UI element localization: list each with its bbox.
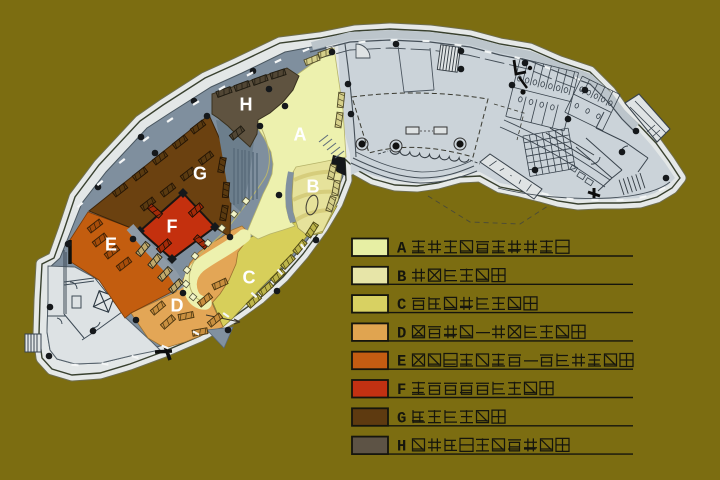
svg-text:A: A xyxy=(397,240,407,258)
svg-text:E: E xyxy=(397,353,406,371)
svg-text:F: F xyxy=(397,381,406,399)
svg-text:D: D xyxy=(171,296,184,316)
svg-text:C: C xyxy=(397,296,406,314)
svg-text:C: C xyxy=(243,268,256,288)
svg-text:D: D xyxy=(397,324,406,342)
svg-text:B: B xyxy=(307,177,320,197)
svg-text:A: A xyxy=(294,125,307,145)
svg-text:B: B xyxy=(397,268,406,286)
svg-text:F: F xyxy=(167,217,178,237)
svg-text:E: E xyxy=(105,235,117,255)
svg-text:H: H xyxy=(240,95,253,115)
svg-text:G: G xyxy=(397,409,406,427)
svg-text:H: H xyxy=(397,438,406,456)
svg-text:G: G xyxy=(193,164,207,184)
